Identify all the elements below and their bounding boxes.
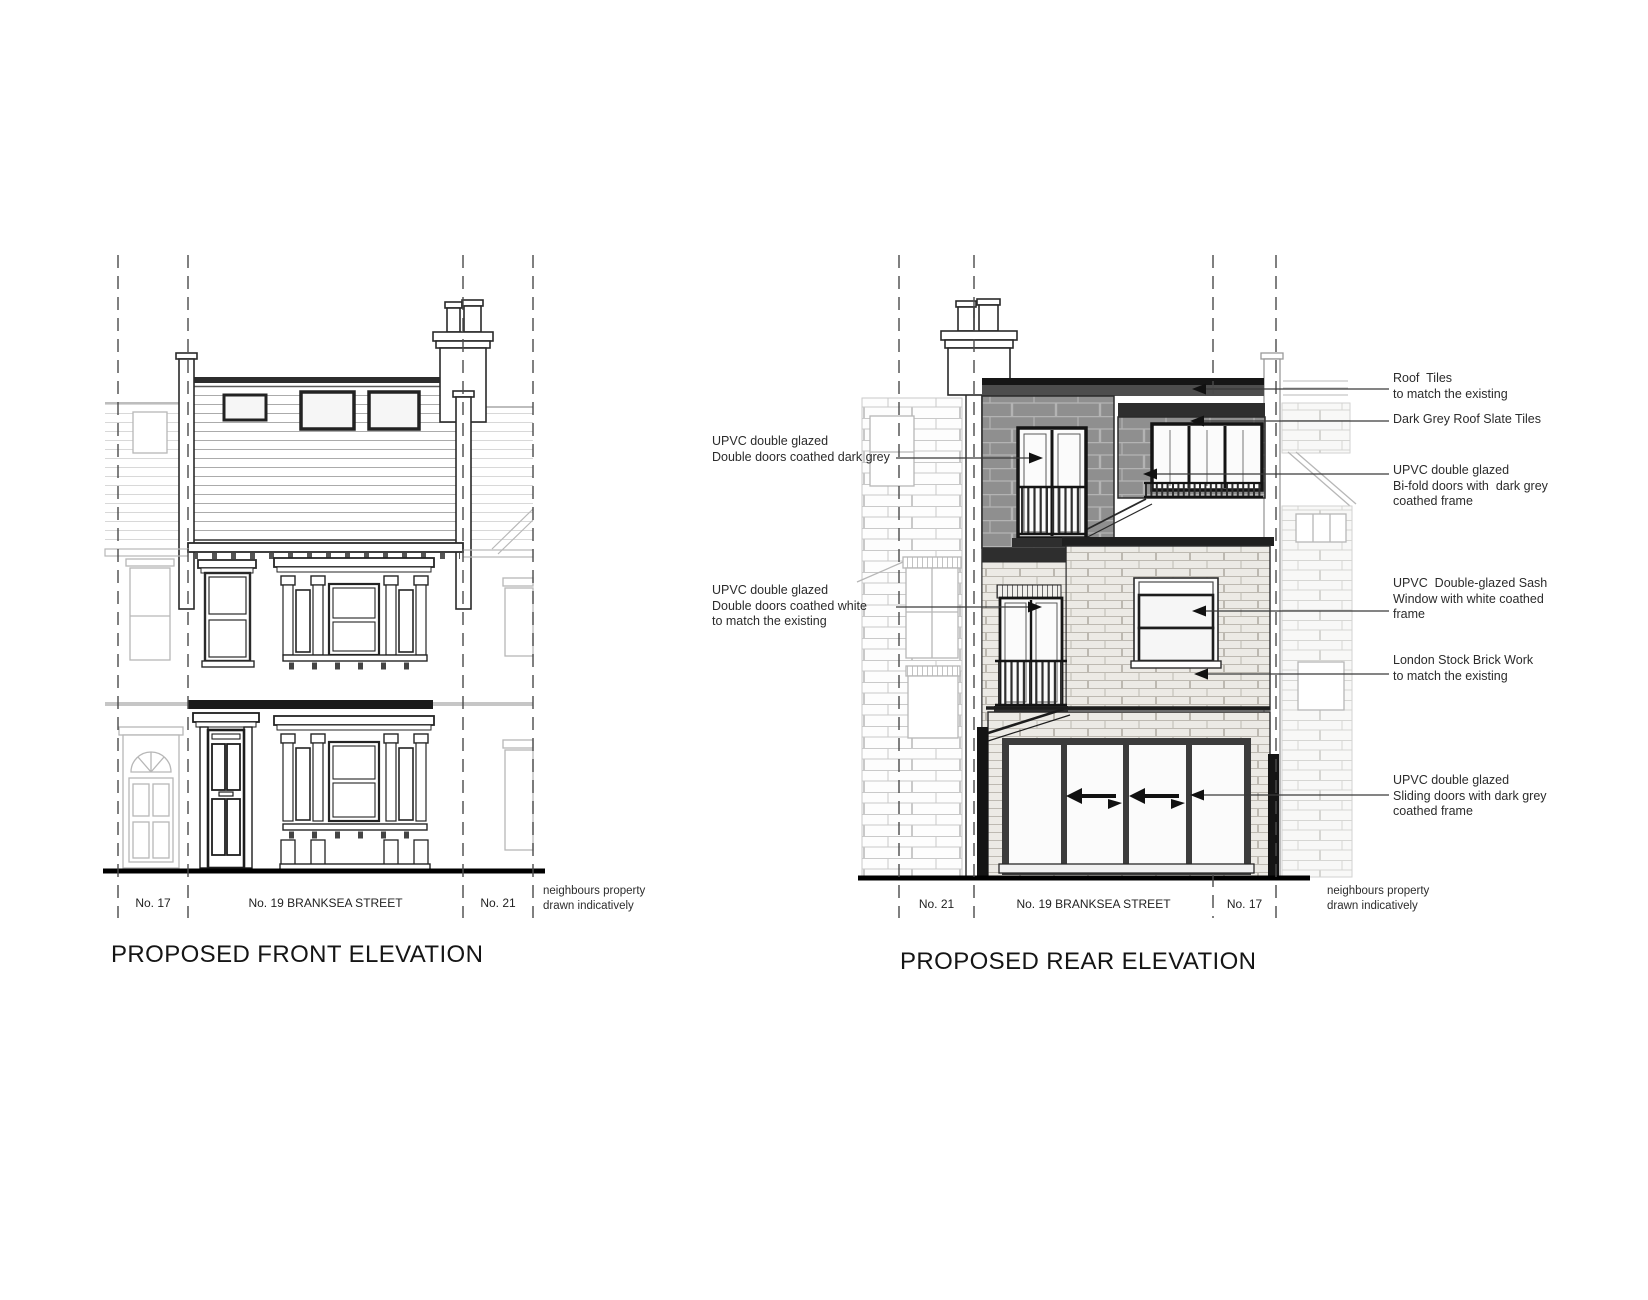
rear-elevation-title: PROPOSED REAR ELEVATION [900,948,1256,976]
annotation-bifold-doors: UPVC double glazed Bi-fold doors with da… [1393,463,1548,510]
front-lower-bay-window [274,716,434,870]
front-floor-band-neighbour-right [433,702,533,706]
annotation-dormer-double-doors: UPVC double glazed Double doors coathed … [712,434,890,465]
rear-elevation-drawing [857,255,1389,918]
rear-neighbour-left [857,398,962,877]
rear-sliding-doors [999,738,1254,875]
rear-plot-label-no21: No. 21 [899,897,974,911]
annotation-brick-work: London Stock Brick Work to match the exi… [1393,653,1533,684]
rear-roof-tiles-band [982,378,1264,396]
annotation-roof-tiles: Roof Tiles to match the existing [1393,371,1508,402]
front-elevation-title: PROPOSED FRONT ELEVATION [111,941,483,969]
rear-neighbours-note: neighbours property drawn indicatively [1327,884,1429,914]
annotation-sash-window: UPVC Double-glazed Sash Window with whit… [1393,576,1547,623]
elevation-linework [0,0,1648,1300]
rear-sash-window [1131,578,1221,668]
front-floor-band [188,700,433,709]
annotation-slate-tiles: Dark Grey Roof Slate Tiles [1393,412,1541,428]
rear-plot-label-no19: No. 19 BRANKSEA STREET [974,897,1213,911]
rear-left-post [977,727,988,877]
front-door [193,713,259,868]
rear-right-post [1268,754,1279,877]
front-elevation-drawing [103,255,545,918]
front-upper-bay-window [274,558,434,666]
annotation-sliding-doors: UPVC double glazed Sliding doors with da… [1393,773,1547,820]
rear-bifold-doors [1144,424,1263,497]
annotation-white-double-doors: UPVC double glazed Double doors coathed … [712,583,867,630]
rear-neighbour-right [1282,381,1356,877]
front-plot-label-no21: No. 21 [463,896,533,910]
front-plot-label-no17: No. 17 [118,896,188,910]
front-neighbours-note: neighbours property drawn indicatively [543,884,645,914]
drawing-sheet: PROPOSED FRONT ELEVATION PROPOSED REAR E… [0,0,1648,1300]
front-plot-label-no19: No. 19 BRANKSEA STREET [188,896,463,910]
rear-plot-label-no17: No. 17 [1213,897,1276,911]
front-upper-sash-window [198,560,256,667]
